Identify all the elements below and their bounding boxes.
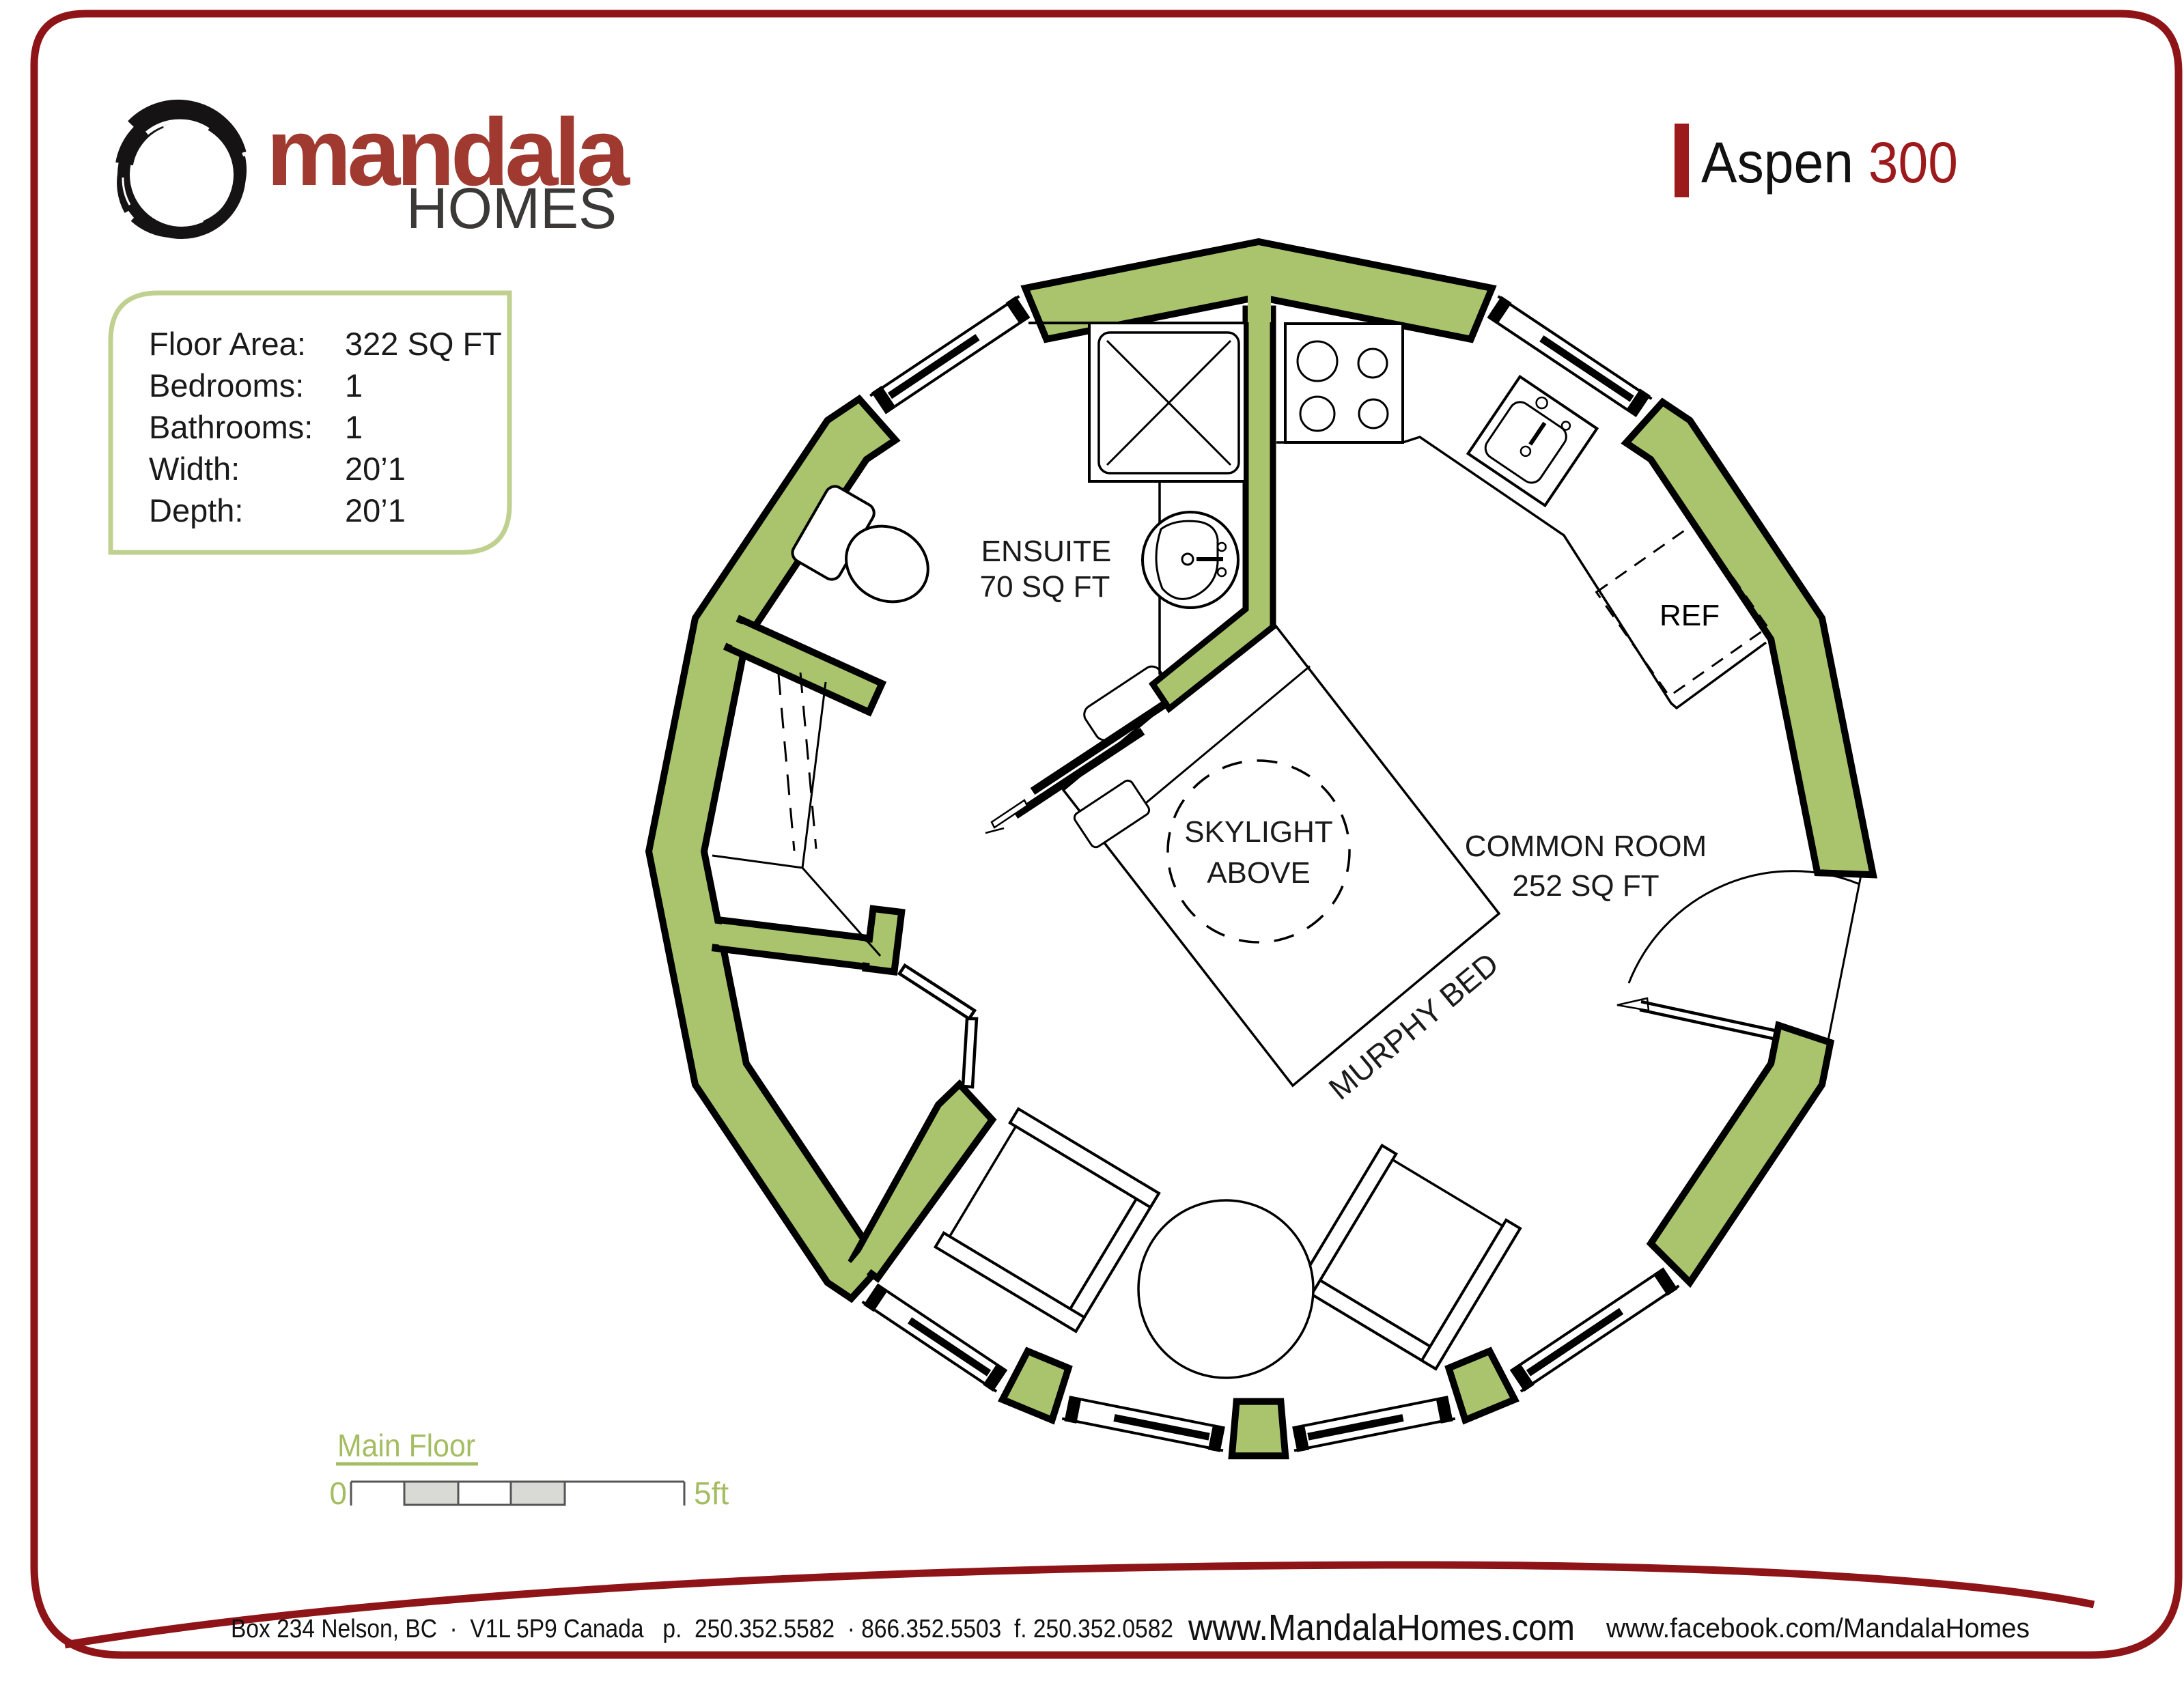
svg-text:20’1: 20’1 [345,451,406,487]
svg-text:ABOVE: ABOVE [1207,856,1311,890]
svg-text:www.facebook.com/MandalaHomes: www.facebook.com/MandalaHomes [1606,1613,2030,1643]
svg-text:Floor Area:: Floor Area: [149,326,306,362]
svg-text:Main Floor: Main Floor [337,1428,475,1463]
svg-text:COMMON ROOM: COMMON ROOM [1465,830,1707,863]
svg-text:REF: REF [1660,599,1720,632]
svg-text:20’1: 20’1 [345,492,406,528]
svg-text:252 SQ FT: 252 SQ FT [1512,869,1659,903]
svg-text:SKYLIGHT: SKYLIGHT [1184,815,1333,849]
svg-text:1: 1 [345,409,363,445]
svg-text:0: 0 [329,1475,347,1511]
svg-text:www.MandalaHomes.com: www.MandalaHomes.com [1188,1607,1575,1648]
svg-text:Aspen 300: Aspen 300 [1701,130,1958,195]
svg-text:5ft: 5ft [694,1475,729,1511]
svg-text:Depth:: Depth: [149,492,243,528]
svg-text:Width:: Width: [149,451,240,487]
svg-text:Bathrooms:: Bathrooms: [149,409,313,445]
svg-text:70 SQ FT: 70 SQ FT [980,570,1110,604]
svg-text:Box 234 Nelson, BC · V1L 5P9: Box 234 Nelson, BC · V1L 5P9 Canada p. 2… [231,1615,1173,1643]
svg-text:Bedrooms:: Bedrooms: [149,367,304,404]
svg-text:HOMES: HOMES [406,176,617,240]
svg-text:1: 1 [345,367,363,404]
svg-text:322 SQ FT: 322 SQ FT [345,326,502,362]
svg-text:ENSUITE: ENSUITE [981,535,1112,568]
